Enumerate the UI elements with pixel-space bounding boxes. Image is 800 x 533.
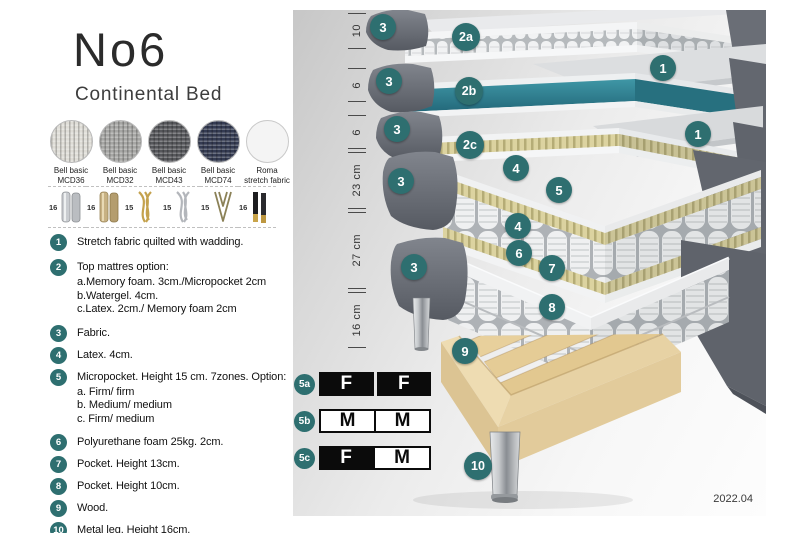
sub-option: a. Firm/ firm [77,386,296,400]
badge-3: 3 [376,68,402,94]
badge-3: 3 [401,254,427,280]
leg-height: 15 [163,203,171,212]
legend-item: 6 Polyurethane foam 25kg. 2cm. [50,434,296,451]
fabric-swatch-circle [50,120,93,163]
sub-option: b.Watergel. 4cm. [77,290,296,304]
item-number-badge: 7 [50,456,67,473]
badge-3: 3 [384,116,410,142]
item-number-badge: 6 [50,434,67,451]
firmness-cell: M [373,446,431,470]
badge-2b: 2b [455,77,483,105]
badge-8: 8 [539,294,565,320]
item-number-badge: 8 [50,478,67,495]
sub-option: c.Latex. 2cm./ Memory foam 2cm [77,303,296,317]
leg-option: 16 [238,186,276,228]
item-number-badge: 10 [50,522,67,533]
leg-height: 15 [201,203,209,212]
badge-5: 5 [546,177,572,203]
item-text: Polyurethane foam 25kg. 2cm. [77,434,223,450]
fabric-swatch-circle [148,120,191,163]
badge-2a: 2a [452,23,480,51]
swatch-label: Bell basicMCD32 [103,166,137,185]
item-number-badge: 1 [50,234,67,251]
cylinder-brass-leg-icon [97,190,121,224]
measure-10: 10 [348,13,366,49]
item-number-badge: 9 [50,500,67,517]
fabric-swatch-circle [197,120,240,163]
fabric-swatch: Bell basicMCD36 [48,120,94,185]
item-number-badge: 3 [50,325,67,342]
swatch-label: Bell basicMCD74 [201,166,235,185]
bed-diagram-panel: 10 6 6 23 cm 27 cm 16 cm 3 2a 1 3 2b 1 3… [293,10,766,516]
firmness-cell: M [319,409,376,433]
legend-sub-options: a.Memory foam. 3cm./Micropocket 2cm b.Wa… [77,276,296,317]
legend-item: 1 Stretch fabric quilted with wadding. [50,234,296,251]
firmness-badge: 5a [294,374,315,395]
fabric-swatch-circle [99,120,142,163]
measure-6-upper: 6 [348,68,366,102]
leg-options: 16 16 15 15 [48,186,276,228]
item-text: Pocket. Height 10cm. [77,478,180,494]
product-sheet: No6 Continental Bed Bell basicMCD36 Bell… [0,0,800,533]
legend-item: 3 Fabric. [50,325,296,342]
sub-option: a.Memory foam. 3cm./Micropocket 2cm [77,276,296,290]
firmness-row-5b: 5b M M [294,409,431,433]
badge-7: 7 [539,255,565,281]
swatch-label: Romastretch fabric [244,166,290,185]
straight-black-brass-leg-icon [249,190,271,224]
leg-option: 16 [86,186,124,228]
version-label: 2022.04 [663,493,753,505]
leg-option: 16 [48,186,86,228]
twisted-gold-leg-icon [135,190,157,224]
firmness-cell: F [377,372,432,396]
legend-sub-options: a. Firm/ firm b. Medium/ medium c. Firm/… [77,386,296,427]
leg-height: 16 [49,203,57,212]
item-text: Stretch fabric quilted with wadding. [77,234,243,250]
fabric-swatch: Bell basicMCD43 [146,120,192,185]
fabric-swatch: Bell basicMCD32 [97,120,143,185]
leg-option: 15 [124,186,162,228]
badge-10: 10 [464,452,492,480]
badge-2c: 2c [456,131,484,159]
firmness-row-5a: 5a F F [294,372,431,396]
firmness-badge: 5b [294,411,315,432]
leg-height: 16 [239,203,247,212]
badge-1: 1 [650,55,676,81]
leg-option: 15 [200,186,238,228]
badge-1: 1 [685,121,711,147]
sub-option: c. Firm/ medium [77,413,296,427]
fabric-swatches: Bell basicMCD36 Bell basicMCD32 Bell bas… [48,120,290,185]
legend-list: 1 Stretch fabric quilted with wadding. 2… [50,229,296,533]
cylinder-silver-leg-icon [59,190,83,224]
measure-27cm: 27 cm [348,212,366,289]
fabric-swatch: Bell basicMCD74 [195,120,241,185]
item-text: Latex. 4cm. [77,347,133,363]
page-title: No6 [73,22,168,77]
swatch-label: Bell basicMCD36 [54,166,88,185]
fabric-swatch: Romastretch fabric [244,120,290,185]
measure-6-lower: 6 [348,115,366,149]
twisted-silver-leg-icon [173,190,195,224]
badge-9: 9 [452,338,478,364]
leg-height: 16 [87,203,95,212]
firmness-cell: M [374,409,431,433]
firmness-cell: F [319,446,373,470]
fabric-swatch-circle [246,120,289,163]
item-text: Top mattres option: [77,259,169,275]
badge-6: 6 [506,240,532,266]
page-subtitle: Continental Bed [75,84,222,106]
item-text: Pocket. Height 13cm. [77,456,180,472]
legend-item: 9 Wood. [50,500,296,517]
firmness-cell: F [319,372,374,396]
item-number-badge: 5 [50,369,67,386]
item-text: Fabric. [77,325,110,341]
legend-item: 7 Pocket. Height 13cm. [50,456,296,473]
measure-23cm: 23 cm [348,152,366,209]
item-number-badge: 4 [50,347,67,364]
legend-item: 2 Top mattres option: [50,259,296,276]
legend-item: 8 Pocket. Height 10cm. [50,478,296,495]
firmness-cells: M M [319,409,431,433]
leg-height: 15 [125,203,133,212]
item-text: Metal leg. Height 16cm. [77,522,190,533]
legend-item: 4 Latex. 4cm. [50,347,296,364]
firmness-cells: F M [319,446,431,470]
item-number-badge: 2 [50,259,67,276]
firmness-cells: F F [319,372,431,396]
measure-16cm: 16 cm [348,292,366,348]
badge-4: 4 [503,155,529,181]
hairpin-leg-icon [211,190,235,224]
leg-option: 15 [162,186,200,228]
badge-3: 3 [370,14,396,40]
badge-4: 4 [505,213,531,239]
legend-item: 5 Micropocket. Height 15 cm. 7zones. Opt… [50,369,296,386]
firmness-row-5c: 5c F M [294,446,431,470]
item-text: Micropocket. Height 15 cm. 7zones. Optio… [77,369,286,385]
badge-3: 3 [388,168,414,194]
firmness-badge: 5c [294,448,315,469]
item-text: Wood. [77,500,108,516]
sub-option: b. Medium/ medium [77,399,296,413]
swatch-label: Bell basicMCD43 [152,166,186,185]
legend-item: 10 Metal leg. Height 16cm. [50,522,296,533]
